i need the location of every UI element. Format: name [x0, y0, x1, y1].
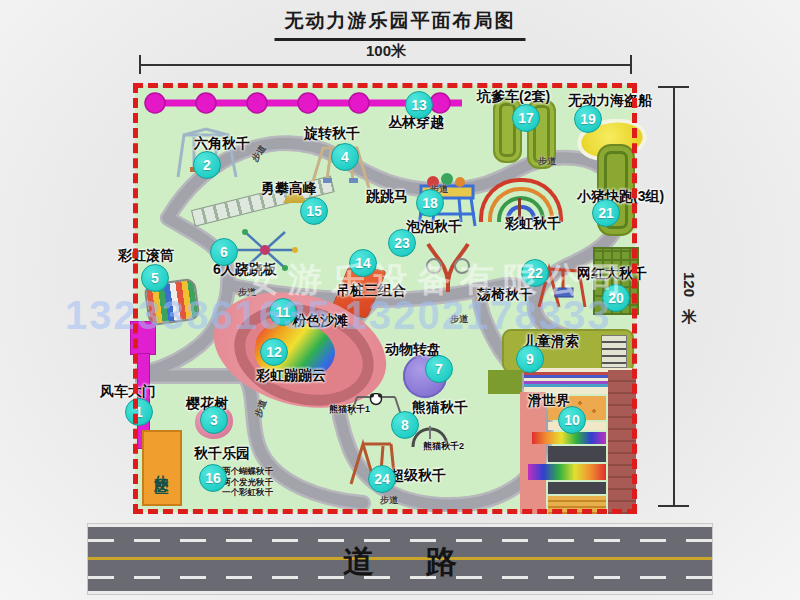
rest-area-block: 休憩区 — [142, 430, 182, 506]
swing-park-note-1: 两个蝴蝶秋千 — [222, 466, 273, 477]
attraction-label-8: 熊猫秋千 — [412, 399, 468, 417]
walkway-label: 步道 — [238, 286, 256, 299]
attraction-badge-5: 5 — [141, 264, 169, 292]
attraction-badge-2: 2 — [193, 151, 221, 179]
attraction-label-24: 超级秋千 — [390, 467, 446, 485]
attraction-label-15: 勇攀高峰 — [261, 180, 317, 198]
walkway-label: 步道 — [380, 494, 398, 507]
attraction-label-14: 吊桩三组合 — [336, 282, 406, 300]
attraction-badge-12: 12 — [260, 338, 288, 366]
panda-swing-2-label: 熊猫秋千2 — [423, 440, 464, 453]
dimension-width-label: 100米 — [140, 42, 632, 61]
attraction-label-2: 六角秋千 — [194, 135, 250, 153]
rainbow-swing-label: 彩虹秋千 — [505, 215, 561, 233]
walkway-label: 步道 — [450, 313, 468, 326]
swing-park-notes: 两个蝴蝶秋千 两个发光秋千 一个彩虹秋千 — [222, 466, 273, 498]
dimension-tick-right-top — [658, 86, 689, 88]
park-map: 休憩区 — [135, 85, 635, 512]
attraction-badge-11: 11 — [269, 298, 297, 326]
slide-world-block — [488, 368, 638, 514]
attraction-badge-1: 1 — [125, 398, 153, 426]
attraction-label-1: 风车大门 — [100, 383, 156, 401]
zipline-ladder-icon — [601, 335, 627, 368]
rest-area-label: 休憩区 — [153, 464, 171, 473]
attraction-badge-24: 24 — [368, 465, 396, 493]
attraction-label-16: 秋千乐园 — [194, 445, 250, 463]
attraction-label-18: 跳跳马 — [366, 188, 408, 206]
road: 道路 — [88, 524, 712, 594]
attraction-label-20: 网红大秋千 — [577, 265, 647, 283]
road-label: 道路 — [88, 541, 712, 583]
swing-park-note-2: 两个发光秋千 — [222, 477, 273, 488]
attraction-badge-8: 8 — [391, 411, 419, 439]
attraction-label-12: 彩虹蹦蹦云 — [256, 367, 326, 385]
walkway-label: 步道 — [538, 155, 556, 168]
attraction-badge-13: 13 — [405, 91, 433, 119]
attraction-label-5: 彩虹滚筒 — [118, 247, 174, 265]
dimension-height-label: 120米 — [679, 272, 698, 297]
attraction-badge-17: 17 — [512, 104, 540, 132]
attraction-label-4: 旋转秋千 — [304, 125, 360, 143]
attraction-badge-6: 6 — [210, 238, 238, 266]
attraction-badge-15: 15 — [300, 197, 328, 225]
bubble-swing-icon — [422, 232, 474, 294]
attraction-badge-21: 21 — [592, 199, 620, 227]
attraction-badge-3: 3 — [200, 406, 228, 434]
windmill-gate-icon — [130, 321, 156, 355]
dimension-line-right — [673, 87, 675, 507]
dimension-line-top — [140, 64, 632, 66]
attraction-badge-7: 7 — [425, 355, 453, 383]
attraction-badge-20: 20 — [602, 284, 630, 312]
attraction-badge-22: 22 — [521, 259, 549, 287]
attraction-badge-10: 10 — [558, 406, 586, 434]
attraction-badge-14: 14 — [349, 249, 377, 277]
attraction-label-22: 荡椅秋千 — [477, 286, 533, 304]
attraction-badge-9: 9 — [516, 345, 544, 373]
attraction-label-23: 泡泡秋千 — [406, 218, 462, 236]
screenshot-root: 无动力游乐园平面布局图 100米 120米 — [0, 0, 800, 600]
page-title: 无动力游乐园平面布局图 — [275, 8, 526, 41]
attraction-label-11: 粉色沙滩 — [292, 312, 348, 330]
attraction-badge-23: 23 — [388, 229, 416, 257]
attraction-label-21: 小猪快跑(3组) — [577, 188, 664, 206]
dimension-tick-right-bottom — [658, 505, 689, 507]
attraction-badge-18: 18 — [416, 189, 444, 217]
attraction-badge-19: 19 — [574, 105, 602, 133]
panda-swing-1-label: 熊猫秋千1 — [329, 403, 370, 416]
attraction-badge-16: 16 — [199, 464, 227, 492]
attraction-label-17: 坑爹车(2套) — [477, 88, 550, 106]
attraction-badge-4: 4 — [331, 143, 359, 171]
swing-park-note-3: 一个彩虹秋千 — [222, 487, 273, 498]
